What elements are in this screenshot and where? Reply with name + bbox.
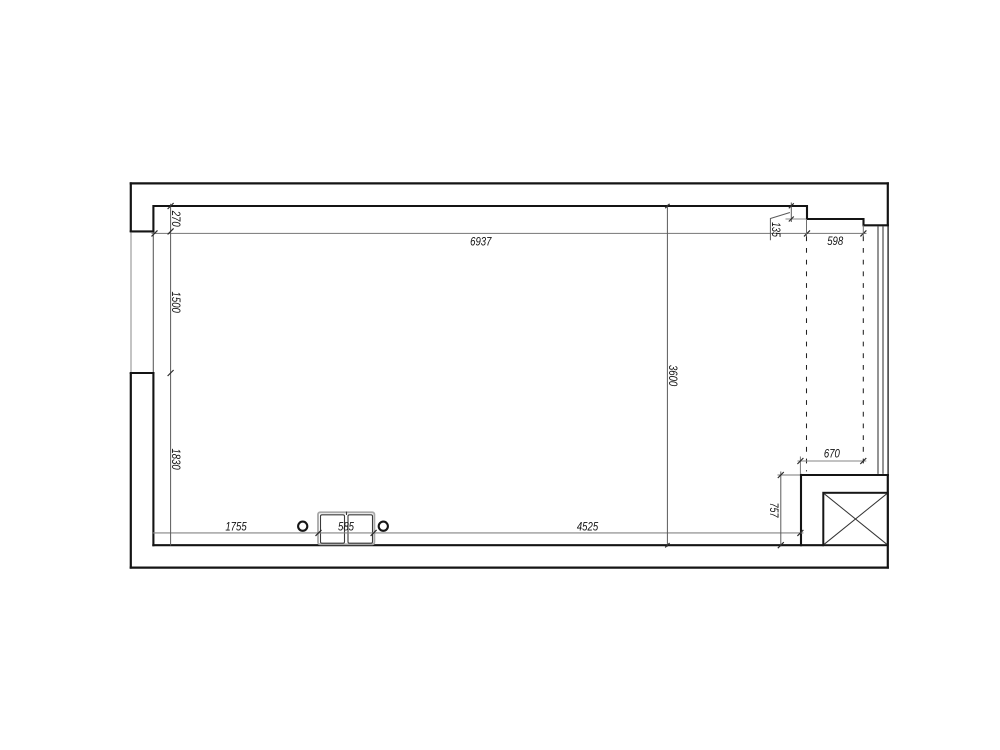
svg-text:1755: 1755 bbox=[225, 519, 246, 533]
svg-text:670: 670 bbox=[824, 446, 840, 460]
svg-text:1500: 1500 bbox=[169, 292, 183, 313]
svg-text:135: 135 bbox=[769, 222, 783, 237]
svg-text:270: 270 bbox=[169, 210, 183, 227]
svg-text:6937: 6937 bbox=[470, 234, 492, 248]
svg-text:757: 757 bbox=[767, 503, 781, 519]
svg-text:598: 598 bbox=[827, 234, 843, 248]
svg-text:3600: 3600 bbox=[666, 365, 680, 386]
svg-text:4525: 4525 bbox=[577, 519, 598, 533]
svg-text:1830: 1830 bbox=[169, 448, 183, 469]
svg-text:585: 585 bbox=[338, 520, 354, 534]
